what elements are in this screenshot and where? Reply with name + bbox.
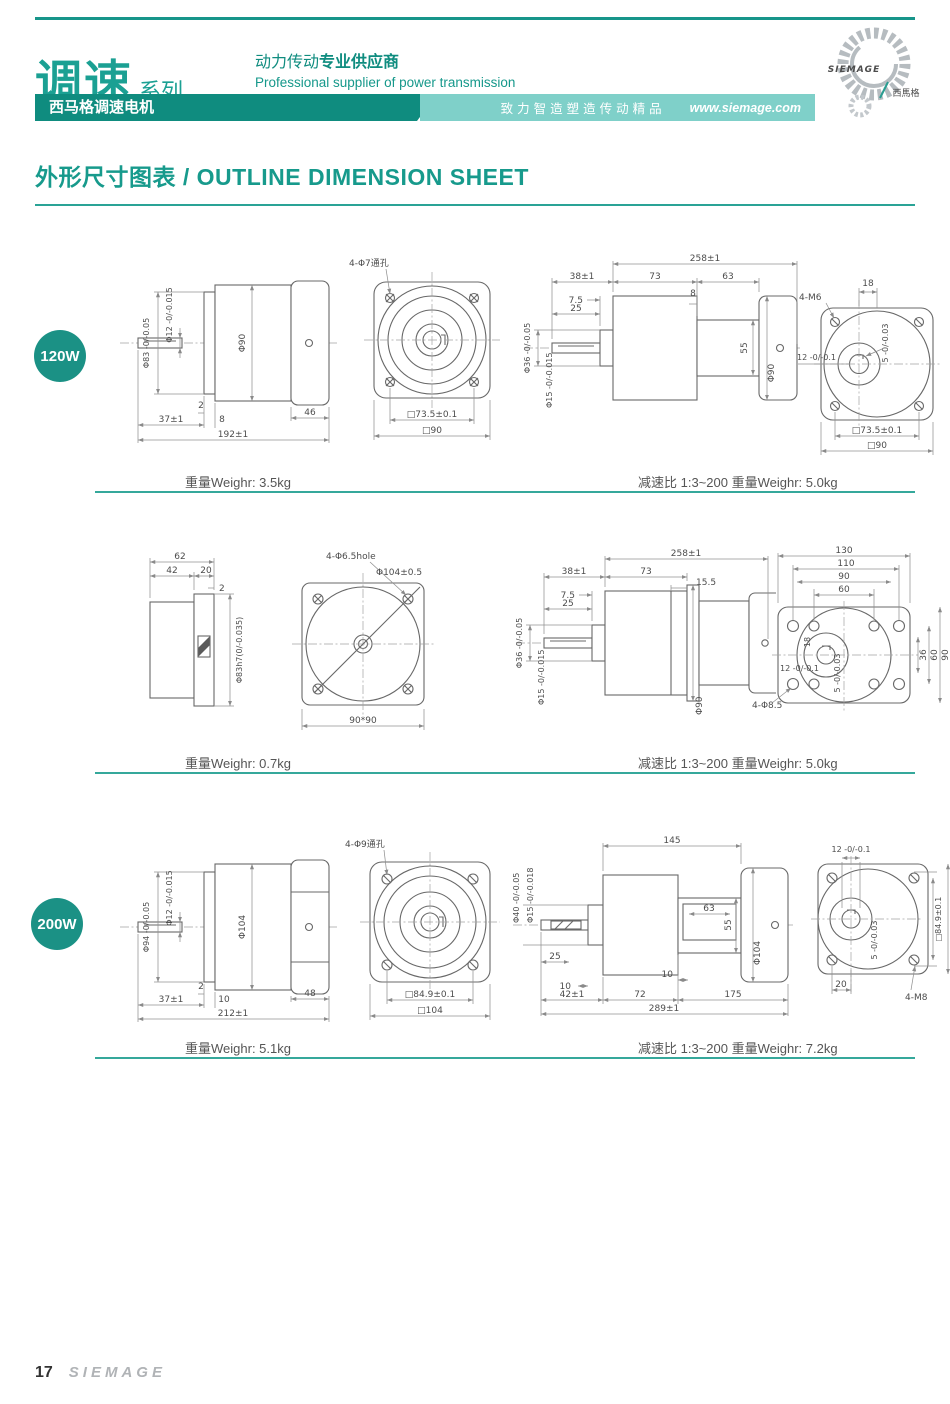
dim-label: 90 (838, 572, 850, 582)
dimension-sheet-page: 调速系列 动力传动专业供应商 Professional supplier of … (0, 0, 950, 1404)
dim-label: Φ12 -0/-0.015 (165, 870, 174, 925)
dim-label: 8 (690, 289, 696, 299)
dim-label: 2 (198, 401, 204, 411)
dim-label: 130 (835, 546, 852, 556)
holes-label: 4-Φ6.5hole (326, 552, 376, 562)
dim-label: 258±1 (690, 254, 720, 264)
dim-label: □90 (867, 441, 887, 451)
dim-label: 12 -0/-0.1 (797, 353, 836, 362)
dim-label: Φ36 -0/-0.05 (515, 618, 524, 668)
dim-label: 90 (941, 649, 950, 661)
dim-label: 55 (724, 919, 734, 930)
dim-label: □84.9±0.1 (934, 897, 943, 942)
dim-label: 48 (304, 989, 316, 999)
dim-label: 73 (640, 567, 651, 577)
dim-label: Φ15 -0/-0.015 (537, 650, 546, 705)
dim-label: 62 (174, 552, 185, 562)
drawing-200w-motor-side-view: Φ94 -0/-0.05 Φ12 -0/-0.015 Φ104 2 37±1 1… (92, 838, 342, 1028)
slogan-text: 致力智造塑造传动精品 (501, 98, 666, 117)
dim-label: 90*90 (349, 716, 377, 726)
dim-label: 18 (862, 279, 874, 289)
drawing-gearmotor-side-view-row2: 258±1 38±1 73 7.5 15.5 25 Φ36 -0/-0.05 Φ… (506, 545, 776, 740)
page-number: 17 (35, 1364, 53, 1382)
dim-label: 46 (304, 408, 316, 418)
drawing-120w-motor-side-view: Φ83 -0/-0.05 Φ12 -0/-0.015 Φ90 2 37±1 8 … (92, 255, 342, 455)
dim-label: Φ36 -0/-0.05 (523, 323, 532, 373)
row-divider (95, 1057, 915, 1059)
logo-cn: 西馬格 (892, 87, 919, 99)
dim-label: 55 (740, 342, 750, 353)
dim-label: 72 (634, 990, 645, 1000)
dim-label: 60 (930, 649, 940, 661)
dim-label: Φ83 -0/-0.05 (142, 318, 151, 368)
drawing-200w-gearmotor-front-view: 12 -0/-0.1 5 -0/-0.03 20 4-M8 □84.9±0.1 … (793, 842, 950, 1007)
dim-label: 63 (722, 272, 733, 282)
weight-caption: 重量Weighr: 0.7kg (185, 753, 291, 772)
dim-label: 145 (663, 836, 680, 846)
supplier-cn: 动力传动专业供应商 (255, 52, 515, 74)
supplier-cn-bold: 专业供应商 (319, 54, 399, 71)
row-divider (95, 491, 915, 493)
dim-label: □84.9±0.1 (405, 990, 455, 1000)
dim-label: Φ15 -0/-0.015 (545, 353, 554, 408)
dim-label: 20 (200, 566, 212, 576)
drawing-120w-motor-front-view: 4-Φ7通孔 □73.5±0.1 □90 (344, 252, 509, 452)
dim-label: 2 (219, 584, 225, 594)
dim-label: □90 (422, 426, 442, 436)
dim-label: Φ104±0.5 (376, 568, 422, 578)
dim-label: 37±1 (159, 415, 184, 425)
dim-label: □73.5±0.1 (407, 410, 457, 420)
dim-label: 175 (724, 990, 741, 1000)
dim-label: 36 (919, 649, 929, 661)
ratio-weight-caption: 减速比 1:3~200 重量Weighr: 7.2kg (638, 1038, 838, 1057)
supplier-cn-normal: 动力传动 (255, 54, 319, 71)
weight-caption: 重量Weighr: 3.5kg (185, 472, 291, 491)
dim-label: 38±1 (570, 272, 595, 282)
dim-label: 60 (838, 585, 850, 595)
dim-label: 12 -0/-0.1 (780, 664, 819, 673)
dim-label: Φ90 (238, 333, 248, 352)
holes-label: 4-Φ7通孔 (349, 258, 389, 269)
dim-label: 37±1 (159, 995, 184, 1005)
dim-label: 63 (703, 904, 714, 914)
dim-label: 25 (549, 952, 560, 962)
page-footer: 17 SIEMAGE (35, 1364, 166, 1382)
dim-label: Φ104 (753, 941, 763, 966)
power-badge-120w: 120W (34, 330, 86, 382)
dim-label: 73 (649, 272, 660, 282)
drawing-200w-gearmotor-side-view: 145 Φ40 -0/-0.05 Φ15 -0/-0.018 63 25 10 … (503, 828, 798, 1028)
dim-label: 110 (837, 559, 854, 569)
dim-label: 2 (198, 982, 204, 992)
dim-label: 18 (803, 637, 812, 647)
drawing-mounting-plate-front-view: 4-Φ6.5hole Φ104±0.5 90*90 (270, 545, 450, 740)
dim-label: 42±1 (560, 990, 585, 1000)
slogan-bar: 致力智造塑造传动精品 www.siemage.com (420, 94, 815, 121)
dim-label: Φ12 -0/-0.015 (165, 287, 174, 342)
dim-label: 20 (835, 980, 847, 990)
dim-label: 212±1 (218, 1009, 248, 1019)
dim-label: 25 (562, 599, 573, 609)
power-badge-200w: 200W (31, 898, 83, 950)
supplier-block: 动力传动专业供应商 Professional supplier of power… (255, 52, 515, 92)
footer-brand: SIEMAGE (69, 1364, 166, 1381)
dim-label: 258±1 (671, 549, 701, 559)
page-title: 外形尺寸图表 / OUTLINE DIMENSION SHEET (35, 158, 529, 192)
drawing-120w-gearmotor-front-view: 18 4-M6 12 -0/-0.1 5 -0/-0.03 □73.5±0.1 … (796, 250, 946, 455)
dim-label: Φ83h7(0/-0.035) (235, 617, 244, 683)
dim-label: 5 -0/-0.03 (881, 323, 890, 362)
dim-label: 38±1 (562, 567, 587, 577)
dim-label: 289±1 (649, 1004, 679, 1014)
dim-label: 12 -0/-0.1 (831, 845, 870, 854)
title-divider (35, 204, 915, 206)
dim-label: Φ90 (767, 363, 777, 382)
dim-label: 5 -0/-0.03 (870, 920, 879, 959)
dim-label: Φ94 -0/-0.05 (142, 902, 151, 952)
dim-label: Φ15 -0/-0.018 (526, 868, 535, 923)
dim-label: 42 (166, 566, 177, 576)
ratio-weight-caption: 减速比 1:3~200 重量Weighr: 5.0kg (638, 472, 838, 491)
dim-label: 8 (219, 415, 225, 425)
bolt-label: 4-M6 (799, 293, 822, 303)
drawing-120w-gearmotor-side-view: 258±1 38±1 73 63 7.5 8 25 Φ36 -0/-0.05 Φ… (512, 248, 804, 448)
product-line-bar: 西马格调速电机 (35, 94, 437, 121)
weight-caption: 重量Weighr: 5.1kg (185, 1038, 291, 1057)
supplier-en: Professional supplier of power transmiss… (255, 74, 515, 92)
dim-label: □73.5±0.1 (852, 426, 902, 436)
row-divider (95, 772, 915, 774)
dim-label: 5 -0/-0.03 (833, 653, 842, 692)
bolt-label: 4-Φ8.5 (752, 701, 782, 711)
ratio-weight-caption: 减速比 1:3~200 重量Weighr: 5.0kg (638, 753, 838, 772)
dim-label: 15.5 (696, 578, 716, 588)
bolt-label: 4-M8 (905, 993, 928, 1003)
dim-label: □104 (417, 1006, 443, 1016)
dim-label: Φ90 (695, 696, 705, 715)
logo-text: SIEMAGE (828, 65, 880, 75)
drawing-gearmotor-front-view-row2: 130 110 90 60 18 12 -0/-0.1 5 -0/-0.03 3… (750, 545, 950, 745)
dim-label: Φ104 (238, 915, 248, 940)
siemage-logo: SIEMAGE 西馬格 (782, 20, 927, 120)
drawing-200w-motor-front-view: 4-Φ9通孔 □84.9±0.1 □104 (340, 834, 510, 1029)
dim-label: 10 (218, 995, 230, 1005)
dim-label: 10 (662, 970, 674, 980)
dim-label: 25 (570, 304, 581, 314)
dim-label: 192±1 (218, 430, 248, 440)
dim-label: Φ40 -0/-0.05 (512, 873, 521, 923)
holes-label: 4-Φ9通孔 (345, 839, 385, 850)
